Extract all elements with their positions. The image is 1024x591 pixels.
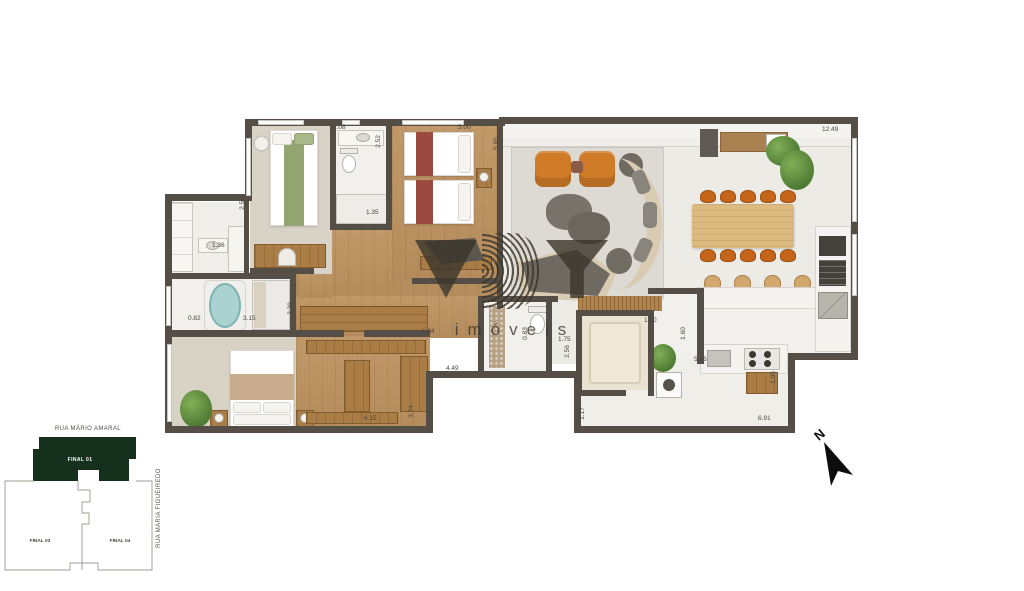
kitchen-sink	[707, 350, 731, 367]
dimension-label: 2.08	[333, 124, 346, 131]
dining-chair	[760, 249, 776, 262]
window	[258, 120, 304, 125]
armchair	[535, 151, 571, 187]
wall	[330, 124, 336, 230]
wardrobe	[306, 340, 426, 354]
wall	[244, 200, 249, 275]
wall	[478, 372, 552, 378]
sofa-cushion	[643, 202, 657, 228]
dimension-label: 3.74	[408, 405, 415, 418]
burner	[764, 360, 771, 367]
terrace-band	[503, 124, 851, 147]
ottoman	[571, 161, 583, 173]
dining-chair	[720, 190, 736, 203]
unit-final-04-label: FINAL 04	[110, 538, 131, 544]
dining-chair	[740, 190, 756, 203]
burner	[749, 351, 756, 358]
slat-bench	[578, 296, 662, 311]
bed-pillow	[263, 402, 291, 413]
site-outline	[5, 481, 152, 570]
bassinet	[253, 135, 270, 152]
wall	[165, 273, 296, 279]
window	[852, 234, 857, 296]
toilet-tank	[528, 306, 547, 313]
closet-island	[344, 360, 370, 412]
dimension-label: 5.85	[493, 137, 500, 150]
dimension-label: 4.49	[446, 365, 459, 372]
bed-runner-red	[416, 132, 433, 176]
bed-pillow	[458, 135, 471, 173]
wall	[648, 288, 704, 294]
washer-door	[663, 379, 675, 391]
wall	[574, 426, 795, 433]
dining-chair	[780, 249, 796, 262]
wardrobe-panels	[171, 202, 193, 272]
sink-unit	[818, 292, 848, 319]
dimension-label: 2.29	[287, 302, 294, 315]
dining-chair	[780, 190, 796, 203]
coffee-table	[568, 212, 610, 244]
burner	[764, 351, 771, 358]
dimension-label: 1.05	[770, 371, 777, 384]
floor-plan-figure: 2.08 3.00 12.49 2.52 5.85 2.53 1.35 1.36…	[0, 0, 1024, 591]
lamp	[479, 172, 489, 182]
bed-pillow	[294, 133, 314, 145]
bed-runner-green	[284, 140, 304, 226]
sink	[356, 133, 370, 142]
wall	[697, 294, 704, 364]
dining-chair	[740, 249, 756, 262]
dimension-label: 2.56	[564, 345, 571, 358]
dimension-label: 0.82	[188, 315, 201, 322]
dimension-label: 5.06	[694, 356, 707, 363]
wall	[426, 371, 433, 433]
planter	[700, 129, 718, 157]
unit-final-03-label: FINAL 03	[30, 538, 51, 544]
wall	[165, 426, 433, 433]
dimension-label: 2.52	[375, 135, 382, 148]
site-plan: RUA MÁRIO AMARAL FINAL 01 FINAL 03 FINAL…	[0, 418, 170, 590]
tall-appliance	[819, 260, 846, 286]
wall	[296, 330, 344, 337]
dimension-label: 1.17	[579, 407, 586, 420]
wall	[165, 330, 296, 337]
bed-pillow	[233, 414, 291, 425]
bed-blanket	[230, 374, 294, 400]
window	[166, 286, 171, 326]
street-name-right: RUA MARIA FIGUEIREDO	[156, 468, 162, 548]
wall	[576, 390, 626, 396]
window	[167, 344, 172, 422]
bed-pillow	[458, 183, 471, 221]
dimension-label: 6.15	[364, 415, 377, 422]
wall	[576, 310, 654, 316]
plant	[780, 150, 814, 190]
site-divider	[78, 481, 90, 570]
unit-final-01-label: FINAL 01	[68, 457, 93, 463]
dimension-label: 12.49	[822, 126, 838, 133]
wardrobe	[306, 412, 398, 424]
watermark-letter-b	[482, 233, 540, 309]
dimension-label: 1.50	[644, 317, 657, 324]
dimension-label: 6.91	[758, 415, 771, 422]
window	[402, 120, 464, 125]
lamp	[214, 413, 224, 423]
dining-chair	[720, 249, 736, 262]
oven	[819, 236, 846, 256]
wall	[386, 124, 392, 230]
wall	[499, 117, 858, 124]
north-label: N	[811, 426, 828, 444]
wall	[330, 224, 392, 230]
bathtub	[209, 283, 241, 328]
window	[852, 138, 857, 222]
dresser-chair	[278, 248, 296, 266]
bed-runner-red	[416, 180, 433, 224]
wardrobe	[400, 356, 428, 412]
armchair	[579, 151, 615, 187]
dimension-label: 1.35	[366, 209, 379, 216]
toilet	[342, 155, 356, 173]
dining-chair	[700, 190, 716, 203]
dining-chair	[760, 190, 776, 203]
wall	[788, 353, 858, 360]
pouf	[606, 248, 632, 274]
wall	[788, 353, 795, 433]
dimension-label: 1.36	[212, 242, 225, 249]
dimension-label: 2.53	[239, 197, 246, 210]
bed-pillow	[272, 133, 292, 145]
street-name-top: RUA MÁRIO AMARAL	[55, 425, 121, 432]
watermark-wordmark: imóveis	[420, 320, 610, 340]
window	[246, 138, 251, 196]
dimension-label: 1.60	[680, 327, 687, 340]
dimension-label: 3.00	[458, 124, 471, 131]
dining-chair	[700, 249, 716, 262]
plant	[180, 390, 212, 428]
dining-table	[692, 204, 794, 248]
north-arrow-shape	[824, 442, 853, 486]
bed-pillow	[233, 402, 261, 413]
north-arrow: N	[800, 420, 864, 490]
hall-closet	[300, 306, 428, 332]
toilet-tank	[340, 148, 358, 154]
shower	[336, 194, 388, 224]
dimension-label: 3.15	[243, 315, 256, 322]
burner	[749, 360, 756, 367]
